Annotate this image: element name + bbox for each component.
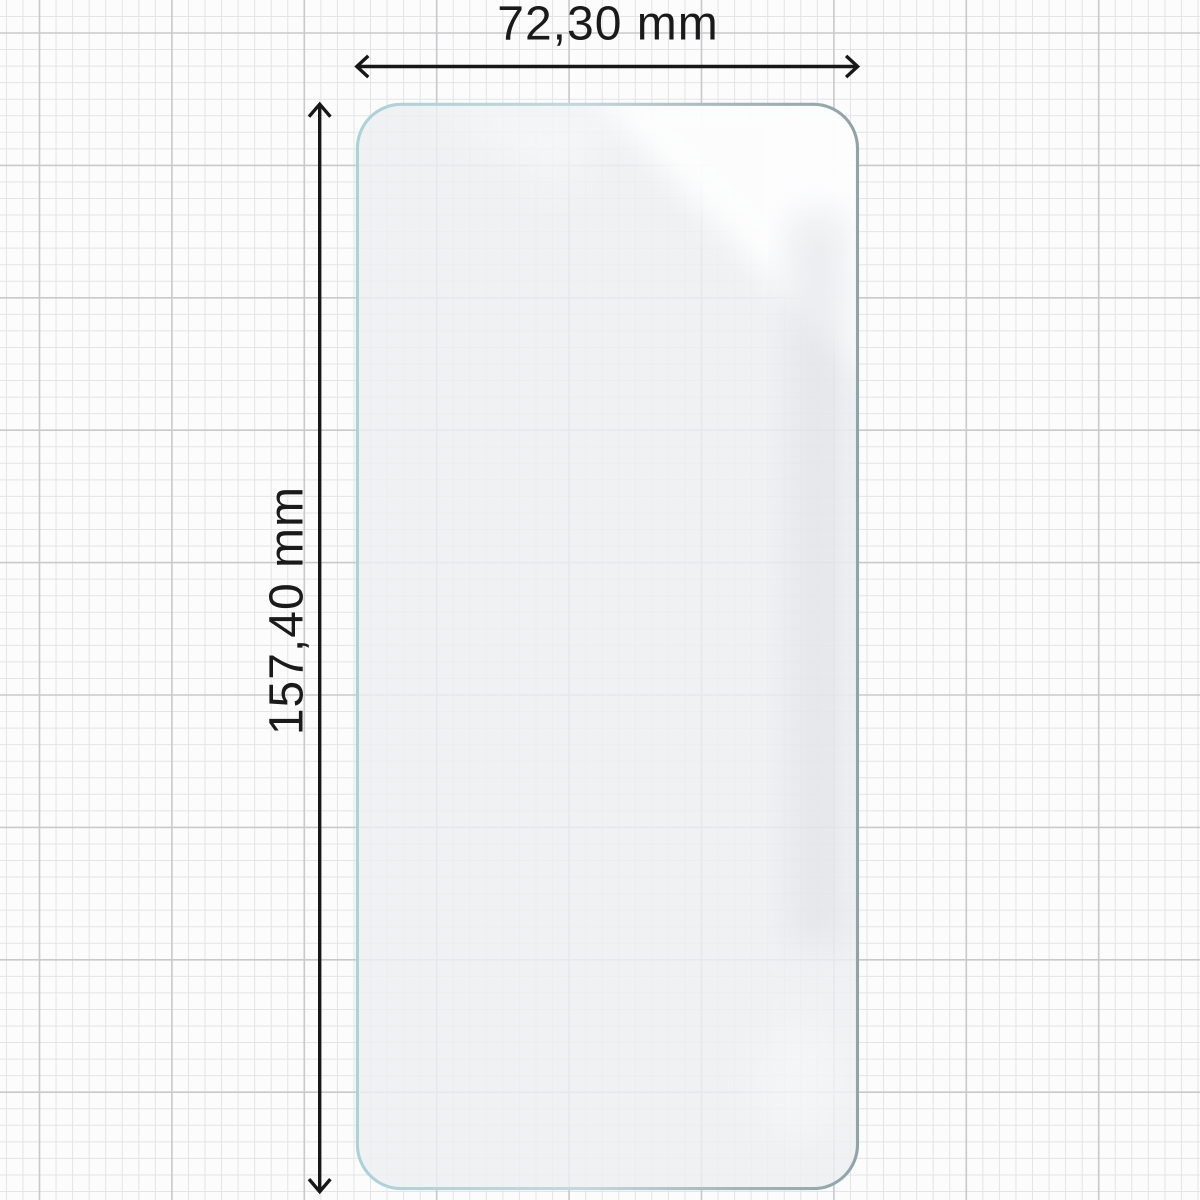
- svg-text:72,30 mm: 72,30 mm: [497, 0, 718, 51]
- svg-text:157,40 mm: 157,40 mm: [261, 486, 314, 735]
